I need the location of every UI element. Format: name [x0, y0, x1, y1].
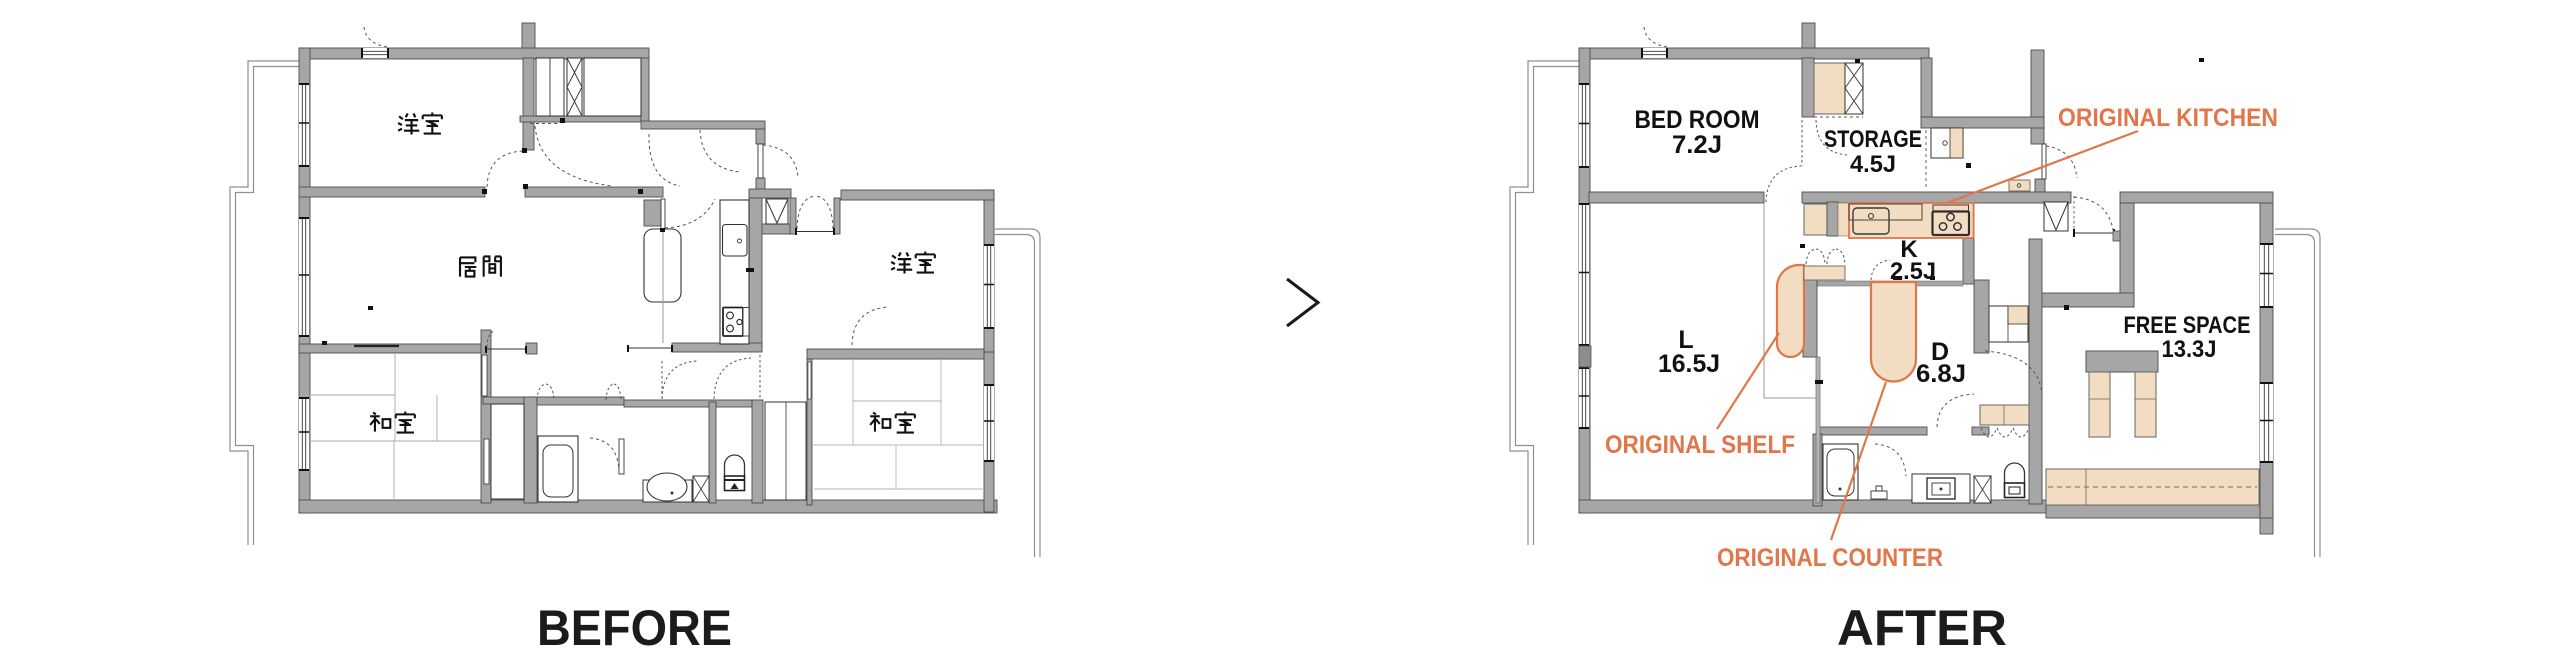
svg-text:16.5J: 16.5J	[1658, 350, 1720, 378]
svg-text:BED ROOM: BED ROOM	[1635, 106, 1760, 134]
svg-text:ORIGINAL COUNTER: ORIGINAL COUNTER	[1717, 544, 1943, 572]
svg-text:7.2J: 7.2J	[1672, 131, 1722, 159]
svg-text:ORIGINAL SHELF: ORIGINAL SHELF	[1605, 431, 1795, 459]
svg-text:ORIGINAL KITCHEN: ORIGINAL KITCHEN	[2058, 104, 2278, 132]
svg-text:4.5J: 4.5J	[1850, 151, 1896, 178]
svg-text:6.8J: 6.8J	[1916, 360, 1966, 388]
svg-text:13.3J: 13.3J	[2162, 336, 2217, 363]
svg-text:AFTER: AFTER	[1837, 600, 2007, 651]
svg-text:BEFORE: BEFORE	[537, 600, 732, 651]
svg-text:STORAGE: STORAGE	[1824, 126, 1922, 153]
svg-text:2.5J: 2.5J	[1890, 258, 1936, 285]
svg-text:FREE SPACE: FREE SPACE	[2124, 312, 2251, 339]
